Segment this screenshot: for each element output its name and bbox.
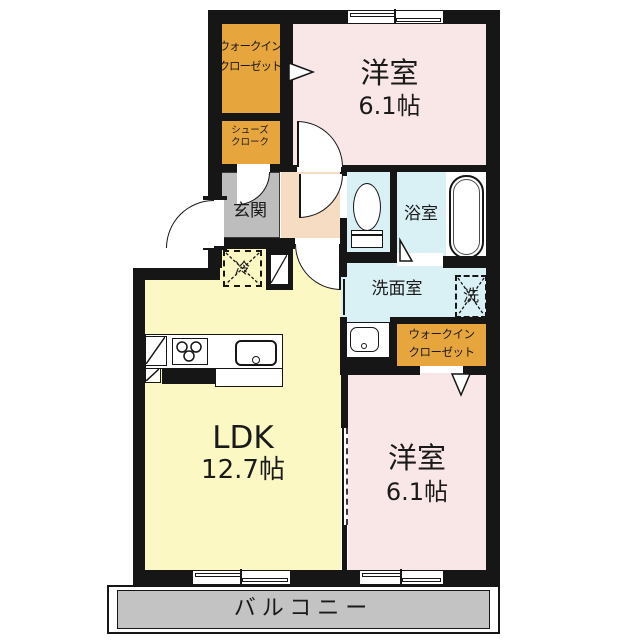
shoes-closet-label-line2: クローク xyxy=(220,138,280,148)
ldk-label: LDK xyxy=(145,422,341,455)
kitchen-counter-lower xyxy=(215,367,283,387)
stove-icon xyxy=(172,338,208,365)
wall-bedroom2-left-thin xyxy=(342,428,344,525)
wall-bedroom-top-bottom xyxy=(341,165,486,172)
floor-plan: 冷 洗 xyxy=(0,0,639,640)
washer-space-box: 洗 xyxy=(455,275,487,318)
walk-in-closet-2-label-line1: ウォークイン xyxy=(397,328,486,340)
bedroom-top-size: 6.1帖 xyxy=(293,94,486,119)
bedroom-bottom-size: 6.1帖 xyxy=(348,480,486,505)
toilet-bowl-icon xyxy=(353,183,381,231)
bedroom-bottom-label: 洋室 xyxy=(348,443,486,473)
pillar-shelf-box xyxy=(270,254,289,285)
window-bedroom-top xyxy=(348,10,443,24)
wall-washroom-closet2 xyxy=(390,317,486,324)
walk-in-closet-1-label-line1: ウォークイン xyxy=(218,40,282,52)
wall-left-ldk xyxy=(133,268,145,585)
wall-toilet-left xyxy=(340,218,347,277)
window-bedroom2-balcony xyxy=(360,570,443,585)
entrance-label: 玄関 xyxy=(220,203,280,221)
wall-closet2-left xyxy=(390,317,397,371)
door-arc-entrance xyxy=(166,200,214,248)
washer-symbol: 洗 xyxy=(457,288,485,305)
bedroom-top-label: 洋室 xyxy=(293,58,486,88)
wall-bedroom2-left-thick xyxy=(341,373,348,428)
bathroom-label: 浴室 xyxy=(395,206,447,224)
kitchen-storage-box-1 xyxy=(145,336,167,366)
washbasin-drain-icon xyxy=(361,343,367,349)
washroom-label: 洗面室 xyxy=(341,281,453,299)
wall-shoes-bottom-left xyxy=(208,164,237,172)
closet2-opening-marker xyxy=(448,371,476,399)
ldk-size: 12.7帖 xyxy=(145,457,341,484)
bathtub-inner-line xyxy=(453,179,480,255)
wall-closet2-bottom-left xyxy=(347,366,420,375)
balcony-floor: バルコニー xyxy=(117,590,490,629)
shoes-closet-label-line1: シューズ xyxy=(220,126,280,136)
wall-bottom xyxy=(133,570,500,585)
wall-toilet-bottom xyxy=(340,252,397,263)
window-ldk-balcony xyxy=(193,570,290,585)
toilet-tank-icon xyxy=(351,230,383,248)
fridge-space-box: 冷 xyxy=(223,250,262,287)
kitchen-storage-box-2 xyxy=(145,368,161,383)
kitchen-counter-end-wall xyxy=(162,369,215,384)
entrance-frame-tick-top xyxy=(203,196,227,200)
bath-door-marker xyxy=(396,236,416,264)
fridge-symbol: 冷 xyxy=(225,261,260,277)
walk-in-closet-2-label-line2: クローゼット xyxy=(397,346,486,358)
walk-in-closet-1-label-line2: クローゼット xyxy=(218,60,282,72)
balcony-label: バルコニー xyxy=(118,591,489,627)
wall-right xyxy=(486,10,500,585)
wall-bath-bottom xyxy=(443,256,486,268)
wall-bedroom2-left-lower xyxy=(342,525,347,570)
wall-ldk-notch xyxy=(133,268,220,280)
sink-drain-icon xyxy=(252,356,260,364)
